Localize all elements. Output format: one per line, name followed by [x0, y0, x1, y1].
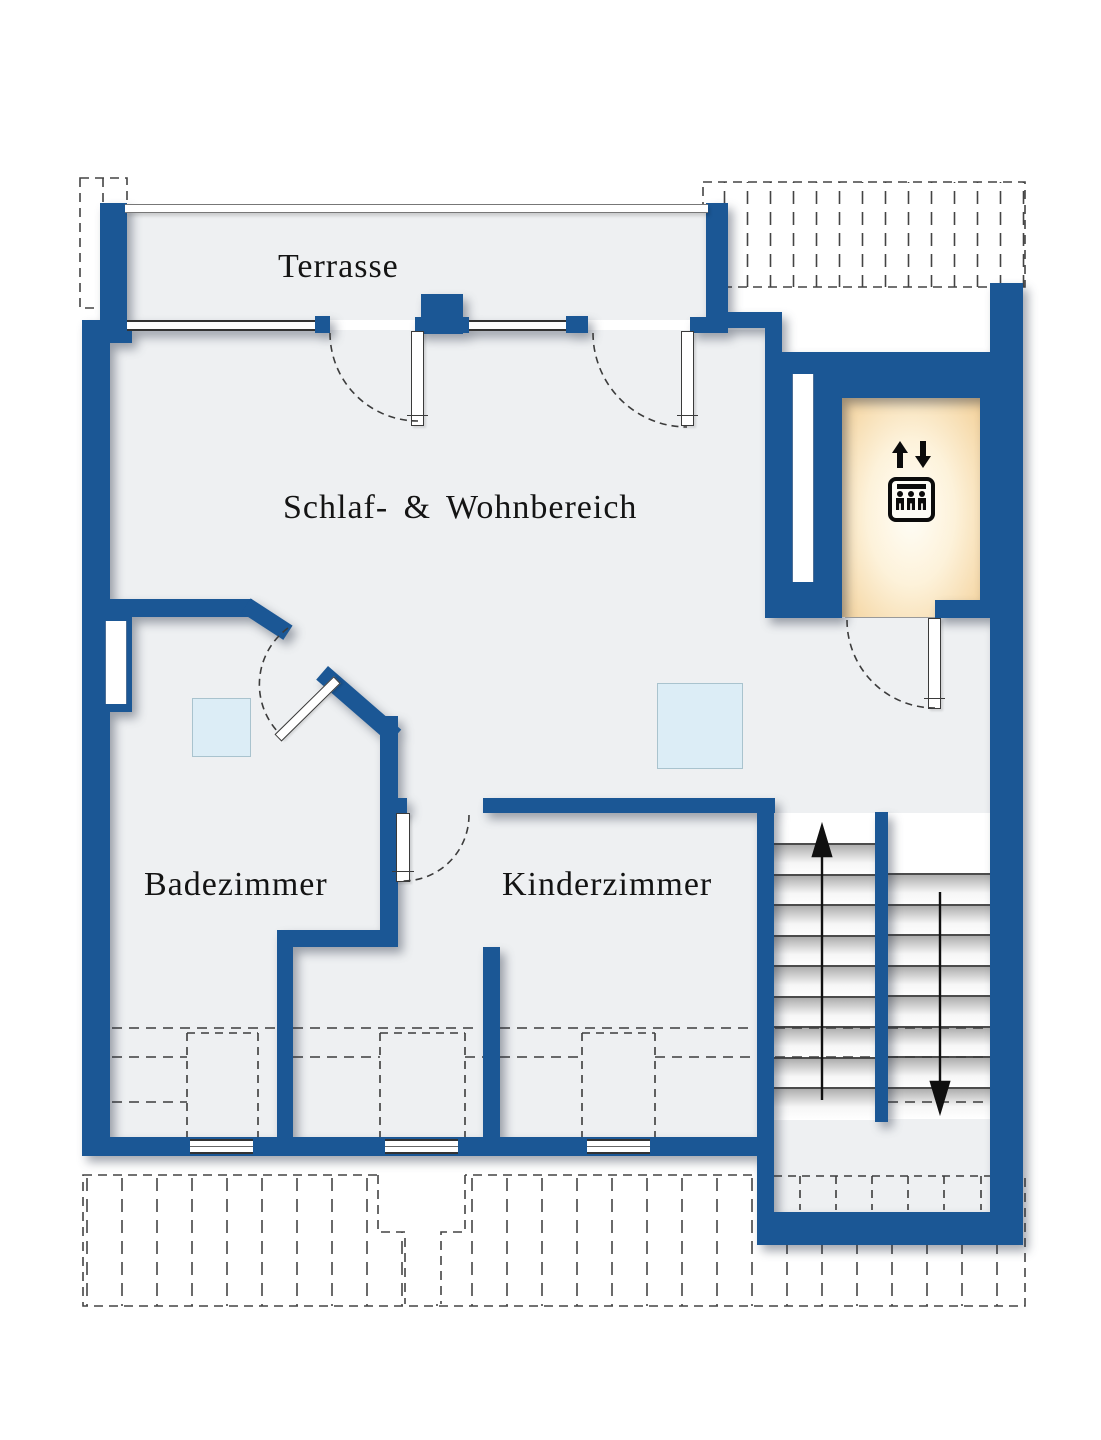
room-label-bathroom: Badezimmer: [144, 866, 328, 904]
room-label-terrace: Terrasse: [278, 248, 399, 286]
room-label-kids: Kinderzimmer: [502, 866, 712, 904]
floor-plan: Terrasse Schlaf- & Wohnbereich Badezimme…: [0, 0, 1101, 1440]
person-icon: [907, 491, 915, 510]
room-label-living: Schlaf- & Wohnbereich: [283, 489, 637, 527]
elevator-down-arrow-icon: [914, 441, 931, 473]
person-icon: [896, 491, 904, 510]
person-icon: [918, 491, 926, 510]
door-swing-layer: [0, 0, 1101, 1440]
elevator-cab-icon: [888, 477, 935, 522]
elevator-icon: [884, 441, 938, 527]
elevator-up-arrow-icon: [891, 441, 908, 473]
